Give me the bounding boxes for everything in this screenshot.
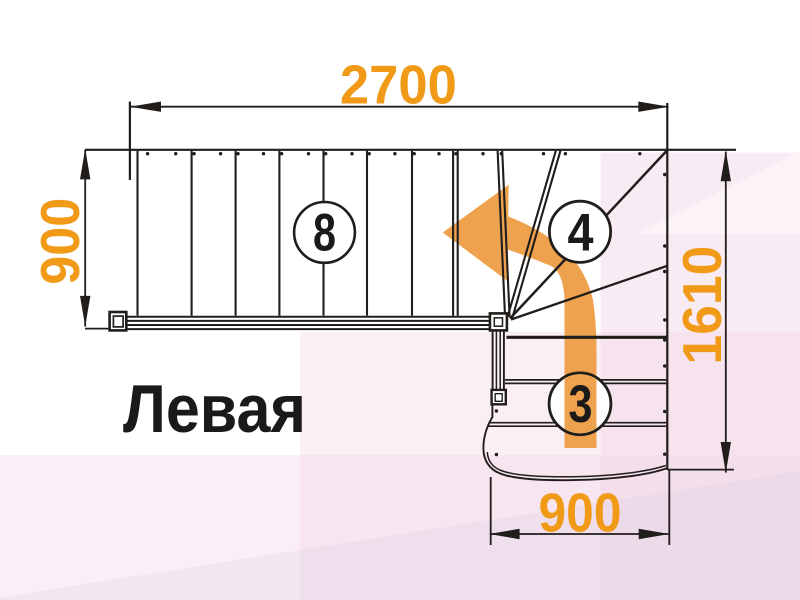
svg-text:1610: 1610	[671, 246, 733, 365]
svg-text:2700: 2700	[340, 53, 457, 115]
svg-text:8: 8	[313, 204, 336, 263]
svg-text:Левая: Левая	[123, 371, 306, 447]
svg-text:900: 900	[29, 198, 91, 285]
svg-text:3: 3	[569, 375, 593, 434]
svg-text:900: 900	[539, 482, 622, 544]
svg-text:4: 4	[568, 203, 594, 262]
